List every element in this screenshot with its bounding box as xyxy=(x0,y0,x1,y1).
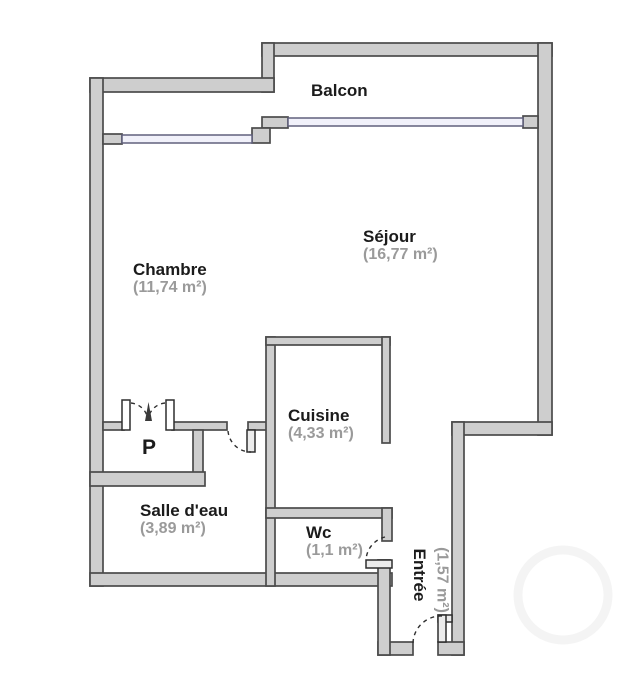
room-label-cuisine: Cuisine (4,33 m²) xyxy=(288,407,354,443)
room-area-entree: (1,57 m²) xyxy=(433,547,450,613)
wall-cuisine-right xyxy=(382,337,390,443)
room-name-entree: Entrée xyxy=(410,549,428,602)
wc-door-leaf xyxy=(366,560,392,568)
room-area-label-entree: (1,57 m²) xyxy=(433,547,450,613)
windows xyxy=(122,118,523,143)
room-name-chambre: Chambre xyxy=(133,261,207,279)
room-area-cuisine: (4,33 m²) xyxy=(288,425,354,442)
floor-plan: Balcon Chambre (11,74 m²) Séjour (16,77 … xyxy=(0,0,640,689)
wall-hall-seg3 xyxy=(248,422,267,430)
room-name-balcon: Balcon xyxy=(311,82,368,100)
wall-left xyxy=(90,78,103,586)
wall-wc-top xyxy=(266,508,392,518)
placard-door-arc-left xyxy=(131,403,148,420)
window-chambre xyxy=(122,135,252,143)
wall-wc-right xyxy=(382,508,392,541)
wall-cuisine-top xyxy=(266,337,390,345)
room-name-placard: P xyxy=(142,437,156,460)
wall-hall-seg1 xyxy=(103,422,124,430)
placard-door-jamb-right xyxy=(166,400,174,430)
window-jamb-left xyxy=(103,134,122,144)
wall-window-step-lower xyxy=(252,128,270,143)
wall-right-lower xyxy=(452,422,464,655)
room-name-wc: Wc xyxy=(306,524,363,542)
room-label-entree: Entrée xyxy=(410,549,428,602)
room-label-balcon: Balcon xyxy=(311,82,368,100)
wall-right-upper xyxy=(538,43,552,435)
room-area-salle-deau: (3,89 m²) xyxy=(140,520,228,537)
room-name-salle-deau: Salle d'eau xyxy=(140,502,228,520)
room-area-sejour: (16,77 m²) xyxy=(363,246,438,263)
wall-window-step-upper xyxy=(262,117,288,128)
window-sejour xyxy=(288,118,523,126)
hall-door-leaf xyxy=(247,430,255,452)
wall-hall-seg2 xyxy=(172,422,227,430)
room-name-sejour: Séjour xyxy=(363,228,438,246)
wall-balcony-top xyxy=(262,43,552,56)
room-area-chambre: (11,74 m²) xyxy=(133,279,207,296)
entry-door-leaf xyxy=(438,615,446,642)
placard-door-jamb-left xyxy=(122,400,130,430)
wall-bottom xyxy=(90,573,392,586)
window-jamb-right xyxy=(523,116,538,128)
wall-step-right xyxy=(452,422,552,435)
room-label-sejour: Séjour (16,77 m²) xyxy=(363,228,438,264)
room-name-cuisine: Cuisine xyxy=(288,407,354,425)
wall-entry-bottom-right xyxy=(438,642,464,655)
room-label-wc: Wc (1,1 m²) xyxy=(306,524,363,560)
wall-center-vertical xyxy=(266,337,275,586)
floorplan-drawing xyxy=(0,0,640,689)
room-area-wc: (1,1 m²) xyxy=(306,542,363,559)
room-label-chambre: Chambre (11,74 m²) xyxy=(133,261,207,297)
room-label-salle-deau: Salle d'eau (3,89 m²) xyxy=(140,502,228,538)
wall-corridor-left xyxy=(378,560,390,655)
watermark-ghost xyxy=(518,550,608,640)
wall-placard-bottom xyxy=(90,472,205,486)
room-label-placard: P xyxy=(142,437,156,460)
wall-chambre-top xyxy=(90,78,274,92)
